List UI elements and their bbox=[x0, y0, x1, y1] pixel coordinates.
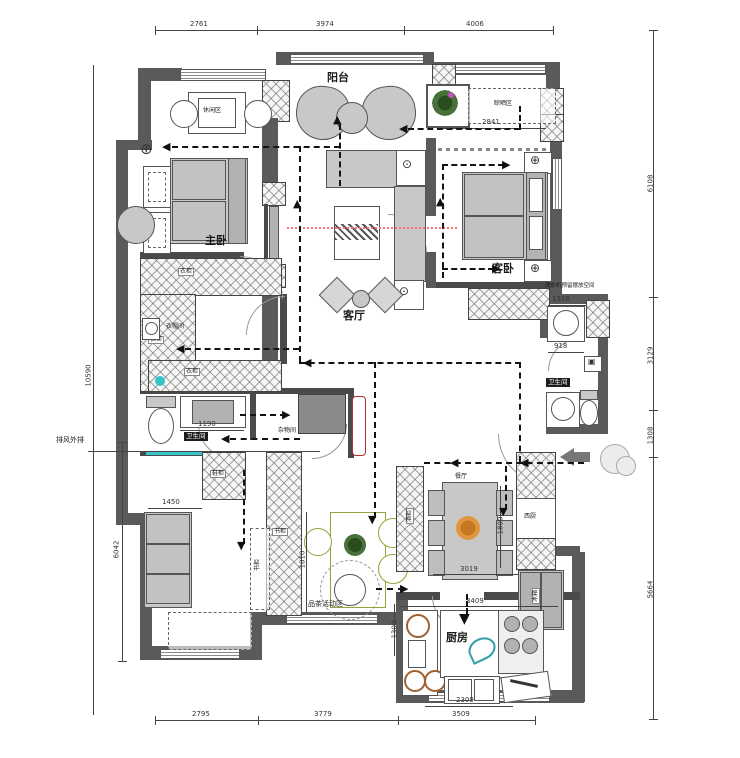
wall bbox=[426, 252, 436, 288]
dim-tick bbox=[649, 297, 658, 298]
dim-line bbox=[180, 430, 244, 431]
wardrobe-label: 衣柜 bbox=[178, 268, 194, 276]
lamp-icon: ⊕ bbox=[530, 154, 540, 166]
dim-tick bbox=[155, 716, 156, 725]
dim-tick bbox=[155, 26, 156, 35]
dim-bottom-3: 3509 bbox=[452, 711, 470, 718]
flow-line bbox=[172, 146, 340, 148]
flow-arrow-down: ▼ bbox=[499, 506, 507, 517]
window bbox=[552, 158, 562, 210]
curtain-line bbox=[438, 148, 548, 151]
flow-arrow-up: ▲ bbox=[293, 198, 301, 209]
tea-plant bbox=[344, 534, 366, 556]
dining-chair bbox=[428, 520, 445, 546]
exhaust-note: 排风外排 bbox=[56, 437, 84, 444]
washing-machine-door bbox=[553, 310, 579, 336]
wall bbox=[572, 552, 585, 702]
sofa-top bbox=[326, 150, 398, 188]
dim-line-right bbox=[653, 30, 654, 720]
sofa-cushion bbox=[146, 544, 190, 574]
dim-bath-left: 1190 bbox=[198, 421, 216, 428]
flow-arrow-right: ▶ bbox=[502, 159, 510, 170]
drying-zone-label: 晾晒区 bbox=[494, 101, 512, 107]
wall-basin-bowl bbox=[145, 322, 158, 335]
dim-tick bbox=[649, 410, 658, 411]
storage-room-label: 杂物间 bbox=[278, 428, 296, 434]
flow-arrow-right: ▶ bbox=[492, 263, 500, 274]
storage-unit bbox=[298, 394, 346, 434]
flow-line bbox=[243, 470, 245, 544]
sofa-cushion bbox=[146, 574, 190, 604]
toilet-bowl bbox=[148, 408, 174, 444]
burner bbox=[522, 616, 538, 632]
dim-left-inner: 6042 bbox=[113, 541, 120, 559]
plant-flower bbox=[448, 92, 454, 98]
flow-arrow-down: ▼ bbox=[368, 514, 376, 525]
fridge-label: 冰箱 bbox=[532, 588, 540, 604]
tv-wall bbox=[264, 204, 268, 264]
bathroom-right-label: 卫生间 bbox=[546, 378, 570, 387]
dining-chair bbox=[428, 490, 445, 516]
dim-left-outer: 10590 bbox=[86, 364, 93, 386]
diamond-chair bbox=[319, 277, 356, 314]
flow-line bbox=[185, 348, 299, 350]
door-arc-cloak bbox=[246, 296, 285, 335]
tea-chair bbox=[304, 528, 332, 556]
washer-note: 洗衣机预留摆放空间 bbox=[545, 284, 595, 290]
dim-line-left-inner bbox=[122, 442, 123, 662]
dim-right-2: 3129 bbox=[647, 347, 654, 365]
toilet-tank bbox=[146, 396, 176, 408]
wardrobe-cabinet bbox=[148, 360, 282, 392]
window bbox=[290, 54, 424, 64]
dim-tick bbox=[118, 661, 127, 662]
flow-arrow-up: ▲ bbox=[333, 114, 341, 125]
dim-line-bottom bbox=[155, 720, 535, 721]
mattress bbox=[464, 216, 524, 258]
flow-line bbox=[339, 124, 341, 186]
dining-chair bbox=[428, 550, 445, 576]
daybed bbox=[168, 612, 252, 650]
dim-line-top bbox=[155, 30, 553, 31]
ceiling-light-icon: ⊕ bbox=[140, 142, 153, 157]
flow-line bbox=[442, 164, 504, 166]
flow-arrow-down: ▼ bbox=[459, 612, 470, 626]
dim-tick bbox=[553, 26, 554, 35]
dim-dining-h: 1800 bbox=[497, 517, 504, 535]
flow-arrow-down: ▼ bbox=[237, 540, 245, 551]
flow-line bbox=[408, 128, 520, 130]
window bbox=[180, 69, 266, 81]
dim-sofa: 1450 bbox=[162, 499, 180, 506]
dim-right-3: 1308 bbox=[647, 427, 654, 445]
plant bbox=[432, 90, 458, 116]
dim-right-1: 6108 bbox=[647, 175, 654, 193]
flow-arrow-left: ◀ bbox=[520, 457, 528, 468]
flow-line bbox=[299, 146, 301, 362]
wardrobe-label: 衣柜 bbox=[184, 368, 200, 376]
chair bbox=[170, 100, 198, 128]
dining-label: 餐厅 bbox=[455, 474, 467, 480]
dim-drying: 2841 bbox=[482, 119, 500, 126]
mattress bbox=[172, 160, 226, 200]
shoe-cabinet-label: 鞋柜 bbox=[210, 470, 226, 478]
flow-line bbox=[519, 106, 521, 130]
burner bbox=[504, 616, 520, 632]
teal-dot bbox=[155, 376, 165, 386]
dining-chair bbox=[496, 550, 513, 576]
flow-line bbox=[442, 164, 444, 278]
dim-top-3: 4006 bbox=[466, 21, 484, 28]
small-round-table bbox=[352, 290, 370, 308]
fridge-door bbox=[541, 572, 562, 628]
dim-line bbox=[548, 352, 584, 353]
wall bbox=[426, 138, 436, 216]
red-cabinet bbox=[352, 396, 366, 456]
tub-chair bbox=[359, 83, 420, 144]
mattress bbox=[464, 174, 524, 216]
nightstand-inner bbox=[148, 172, 166, 202]
dim-top-1: 2761 bbox=[190, 21, 208, 28]
flow-line bbox=[505, 466, 507, 510]
sofa-side bbox=[394, 186, 426, 282]
bath-cabinet bbox=[586, 300, 610, 338]
speaker-icon: ⊙ bbox=[402, 158, 412, 170]
headboard-cushion bbox=[529, 216, 543, 250]
chair bbox=[244, 100, 272, 128]
basin bbox=[551, 397, 575, 421]
dim-tick bbox=[649, 457, 658, 458]
leisure-zone-label: 休闲区 bbox=[203, 108, 221, 114]
tv-column-hatch bbox=[262, 182, 286, 206]
flow-line bbox=[240, 414, 286, 416]
sofa-cushion bbox=[146, 514, 190, 544]
socket-icon: ▣ bbox=[588, 358, 596, 366]
flow-arrow-up: ▲ bbox=[436, 196, 444, 207]
dim-kitchen-left: 1300 bbox=[391, 621, 398, 639]
toilet-tank bbox=[580, 390, 598, 400]
burner bbox=[504, 638, 520, 654]
dim-tick bbox=[649, 719, 658, 720]
dim-dining-w: 3019 bbox=[460, 566, 478, 573]
headboard-cushion bbox=[529, 178, 543, 212]
wardrobe-cabinet bbox=[140, 258, 282, 296]
dim-tick bbox=[404, 26, 405, 35]
flow-arrow-left: ◀ bbox=[176, 343, 184, 354]
flow-arrow-right: ▶ bbox=[400, 583, 408, 594]
master-bedroom-label: 主卧 bbox=[205, 235, 227, 246]
flow-arrow-left: ◀ bbox=[450, 457, 458, 468]
flow-arrow-left: ◀ bbox=[162, 141, 170, 152]
lamp-icon: ⊕ bbox=[530, 262, 540, 274]
kitchen-item bbox=[408, 640, 426, 668]
living-room-label: 客厅 bbox=[343, 310, 365, 321]
flow-arrow-left: ◀ bbox=[221, 433, 229, 444]
dim-line-kitchen bbox=[425, 706, 513, 707]
wall bbox=[138, 68, 151, 150]
tea-zone-label: 品茶活动区 bbox=[308, 601, 343, 608]
window bbox=[160, 649, 240, 659]
flow-line bbox=[374, 362, 376, 518]
dim-line bbox=[148, 508, 202, 509]
dim-tick bbox=[398, 716, 399, 725]
bookcase-label-vertical: 书柜 bbox=[255, 559, 261, 571]
wall bbox=[262, 118, 278, 184]
dim-line bbox=[400, 606, 558, 607]
dim-tick bbox=[118, 442, 127, 443]
bookcase-label: 书柜 bbox=[272, 528, 288, 536]
dim-bottom-2: 3779 bbox=[314, 711, 332, 718]
pot bbox=[404, 670, 426, 692]
flow-line bbox=[424, 462, 584, 464]
tv-sight-line bbox=[287, 227, 457, 229]
sink-basin bbox=[474, 679, 494, 701]
headboard bbox=[228, 158, 246, 244]
dim-kitchen-top: 3409 bbox=[466, 598, 484, 605]
dim-right-4: 5664 bbox=[647, 581, 654, 599]
dim-line-left-outer bbox=[93, 65, 94, 715]
person-figure bbox=[616, 456, 636, 476]
tv-panel bbox=[269, 206, 279, 264]
dim-top-2: 3974 bbox=[316, 21, 334, 28]
dim-washer: 1318 bbox=[552, 296, 570, 303]
flow-line bbox=[230, 438, 300, 440]
toilet-bowl bbox=[580, 400, 598, 426]
dim-kitchen-w: 2309 bbox=[456, 697, 474, 704]
table-flower bbox=[456, 516, 480, 540]
dim-tick bbox=[649, 30, 658, 31]
dim-bath-right: 918 bbox=[554, 343, 567, 350]
floor-plan: 休闲区 ⊕ 主卧 衣柜 衣柜 衣帽间 衣柜 1190 卫生间 鞋柜 杂物间 排风… bbox=[0, 0, 740, 758]
window bbox=[452, 64, 546, 74]
guest-closet bbox=[468, 288, 550, 320]
cloakroom-label: 衣帽间 bbox=[166, 324, 184, 330]
flow-line bbox=[442, 268, 494, 270]
entry-arrow-tail bbox=[574, 452, 590, 462]
bathroom-left-label: 卫生间 bbox=[184, 432, 208, 441]
dim-tick bbox=[535, 716, 536, 725]
flow-line bbox=[519, 362, 521, 462]
flow-line bbox=[299, 362, 521, 364]
flow-arrow-left: ◀ bbox=[303, 357, 311, 368]
dim-bottom-1: 2795 bbox=[192, 711, 210, 718]
dim-tick bbox=[258, 716, 259, 725]
flow-arrow-right: ▶ bbox=[282, 409, 290, 420]
burner bbox=[522, 638, 538, 654]
west-kitchen-cabinet bbox=[516, 538, 556, 570]
balcony-label: 阳台 bbox=[327, 72, 349, 83]
kitchen-label: 厨房 bbox=[446, 632, 468, 643]
wine-cabinet-label: 酒柜 bbox=[406, 508, 414, 524]
pot bbox=[406, 614, 430, 638]
flow-arrow-left: ◀ bbox=[399, 123, 407, 134]
west-kitchen-label: 西厨 bbox=[524, 514, 536, 520]
dim-tea: 1810 bbox=[299, 551, 306, 569]
dim-tick bbox=[257, 26, 258, 35]
round-stool bbox=[117, 206, 155, 244]
